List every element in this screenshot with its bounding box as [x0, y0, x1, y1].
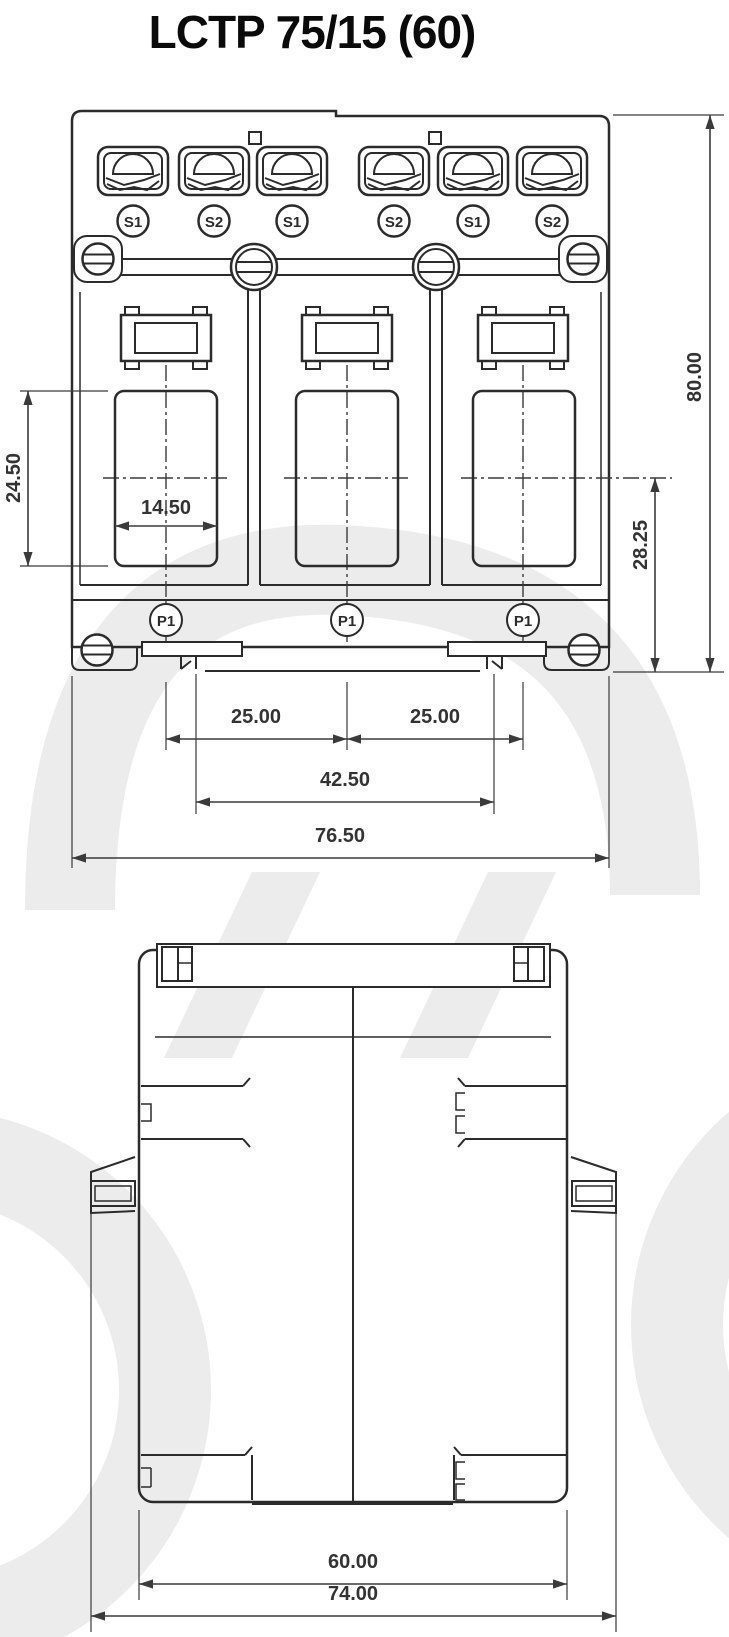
busbar-fixtures	[121, 307, 568, 369]
dim-center-to-base: 28.25	[613, 478, 724, 672]
secondary-terminal-labels: S1 S2 S1 S2 S1 S2	[118, 206, 568, 237]
dim-text-center-to-base: 28.25	[630, 520, 652, 570]
drawing-canvas: LCTP 75/15 (60) S1 S2 S1 S2 S1 S2	[0, 0, 729, 1637]
terminal-label: S1	[283, 214, 301, 231]
indicator-square-left	[249, 132, 261, 144]
dim-fixing-span: 42.50	[196, 674, 494, 814]
side-top-strip	[157, 944, 550, 987]
dim-text-window-width: 14.50	[141, 497, 191, 519]
dim-text-body-depth: 60.00	[328, 1551, 378, 1573]
terminal-clamps	[98, 147, 587, 195]
terminal-label: S1	[464, 214, 482, 231]
indicator-square-right	[429, 132, 441, 144]
dim-text-pitch-right: 25.00	[410, 706, 460, 728]
sealing-rail	[97, 259, 584, 275]
primary-label: P1	[514, 613, 532, 630]
terminal-label: S2	[385, 214, 403, 231]
primary-label: P1	[338, 613, 356, 630]
dim-pole-pitch: 25.00 25.00	[166, 682, 523, 750]
dim-window-height: 24.50	[3, 391, 108, 566]
dim-overall-height: 80.00	[613, 115, 724, 672]
terminal-label: S1	[124, 214, 142, 231]
background-watermark-logo	[0, 570, 729, 1625]
dim-text-fixing-span: 42.50	[320, 769, 370, 791]
dim-text-overall-height: 80.00	[684, 352, 706, 402]
primary-label: P1	[157, 613, 175, 630]
dim-text-window-height: 24.50	[3, 453, 25, 503]
technical-drawing-page: LCTP 75/15 (60) S1 S2 S1 S2 S1 S2	[0, 0, 729, 1637]
dim-text-pitch-left: 25.00	[231, 706, 281, 728]
terminal-label: S2	[543, 214, 561, 231]
drawing-title: LCTP 75/15 (60)	[149, 6, 476, 58]
dim-text-overall-depth: 74.00	[328, 1583, 378, 1605]
cover-screws	[83, 244, 599, 291]
dim-text-overall-width: 76.50	[315, 825, 365, 847]
terminal-label: S2	[205, 214, 223, 231]
